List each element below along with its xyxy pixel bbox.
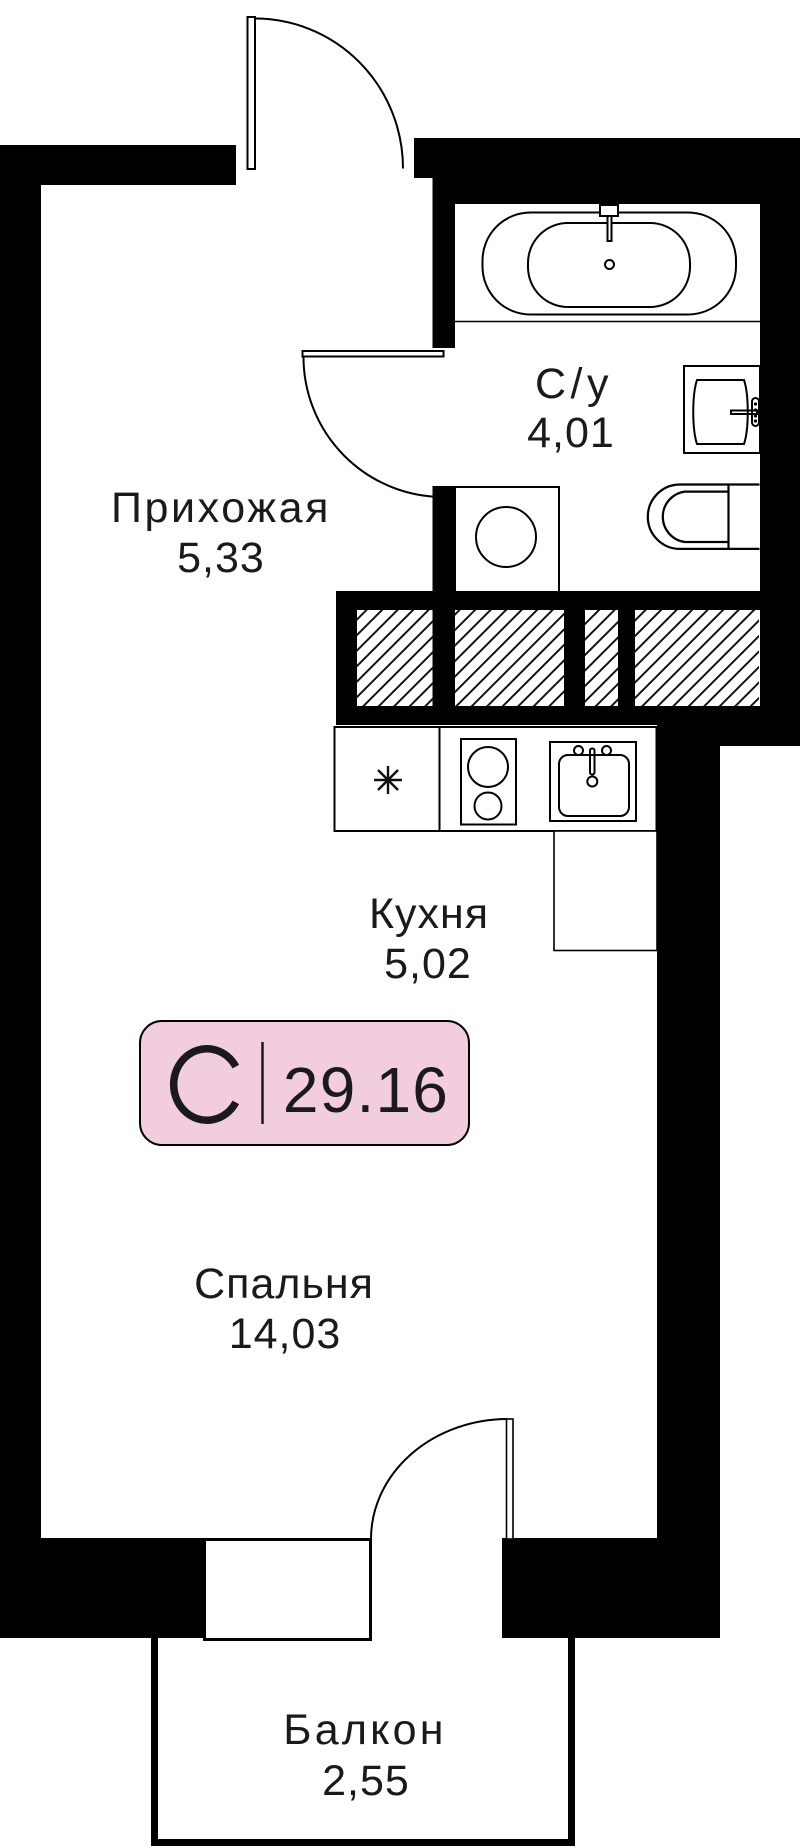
svg-text:Прихожая: Прихожая: [111, 484, 331, 532]
svg-text:Балкон: Балкон: [283, 1706, 446, 1754]
svg-text:2,55: 2,55: [322, 1757, 410, 1805]
svg-text:5,02: 5,02: [384, 940, 472, 988]
svg-text:Кухня: Кухня: [369, 890, 489, 938]
svg-text:С/у: С/у: [535, 360, 613, 408]
svg-text:14,03: 14,03: [229, 1310, 342, 1358]
svg-text:29.16: 29.16: [283, 1054, 449, 1126]
svg-text:Спальня: Спальня: [194, 1260, 374, 1308]
svg-text:5,33: 5,33: [177, 534, 265, 582]
svg-text:4,01: 4,01: [527, 409, 615, 457]
